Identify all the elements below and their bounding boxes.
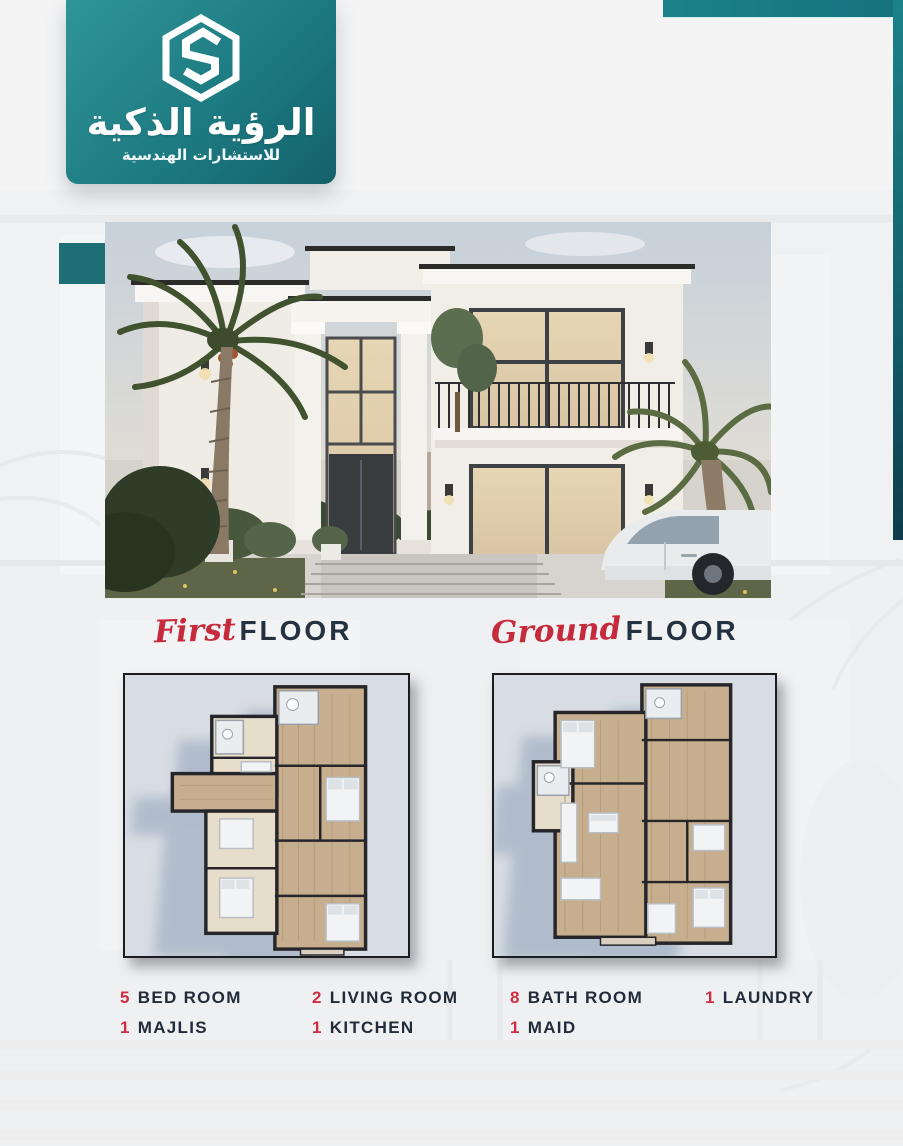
stat-laundry-count: 1 xyxy=(705,988,716,1007)
stat-kitchen-count: 1 xyxy=(312,1018,323,1037)
ground-floor-script-word: Ground xyxy=(491,611,622,652)
ground-floor-word: FLOOR xyxy=(626,615,739,647)
brand-name-arabic: الرؤية الذكية xyxy=(87,104,316,143)
stat-living-rooms: 2LIVING ROOM xyxy=(312,988,458,1008)
ground-floor-title: Ground FLOOR xyxy=(480,609,750,653)
stat-kitchen: 1KITCHEN xyxy=(312,1018,414,1038)
brand-logo-card: الرؤية الذكية للاستشارات الهندسية xyxy=(66,0,336,184)
brand-tagline-arabic: للاستشارات الهندسية xyxy=(122,146,280,164)
villa-exterior-photo xyxy=(105,222,771,598)
stat-bedrooms-count: 5 xyxy=(120,988,131,1007)
stat-maid-label: MAID xyxy=(528,1018,577,1037)
ground-floor-plan-image xyxy=(492,673,777,958)
first-floor-title: First FLOOR xyxy=(123,609,383,653)
stat-bathrooms-label: BATH ROOM xyxy=(528,988,643,1007)
hexagon-s-logo-icon xyxy=(159,14,243,102)
stat-bedrooms: 5BED ROOM xyxy=(120,988,242,1008)
stat-majlis: 1MAJLIS xyxy=(120,1018,208,1038)
brochure-page: الرؤية الذكية للاستشارات الهندسية xyxy=(0,0,903,1146)
top-teal-bar xyxy=(663,0,903,18)
stat-living-rooms-label: LIVING ROOM xyxy=(330,988,459,1007)
first-floor-script-word: First xyxy=(153,612,236,651)
stat-kitchen-label: KITCHEN xyxy=(330,1018,415,1037)
stat-laundry-label: LAUNDRY xyxy=(723,988,815,1007)
stat-laundry: 1LAUNDRY xyxy=(705,988,814,1008)
first-floor-plan-image xyxy=(123,673,410,958)
left-teal-accent xyxy=(59,243,106,284)
first-floor-word: FLOOR xyxy=(239,615,352,647)
stat-bathrooms-count: 8 xyxy=(510,988,521,1007)
stat-bedrooms-label: BED ROOM xyxy=(138,988,242,1007)
stat-majlis-count: 1 xyxy=(120,1018,131,1037)
stat-maid-count: 1 xyxy=(510,1018,521,1037)
stat-majlis-label: MAJLIS xyxy=(138,1018,208,1037)
stat-bathrooms: 8BATH ROOM xyxy=(510,988,643,1008)
stat-living-rooms-count: 2 xyxy=(312,988,323,1007)
right-teal-bar xyxy=(893,0,903,540)
stat-maid: 1MAID xyxy=(510,1018,576,1038)
